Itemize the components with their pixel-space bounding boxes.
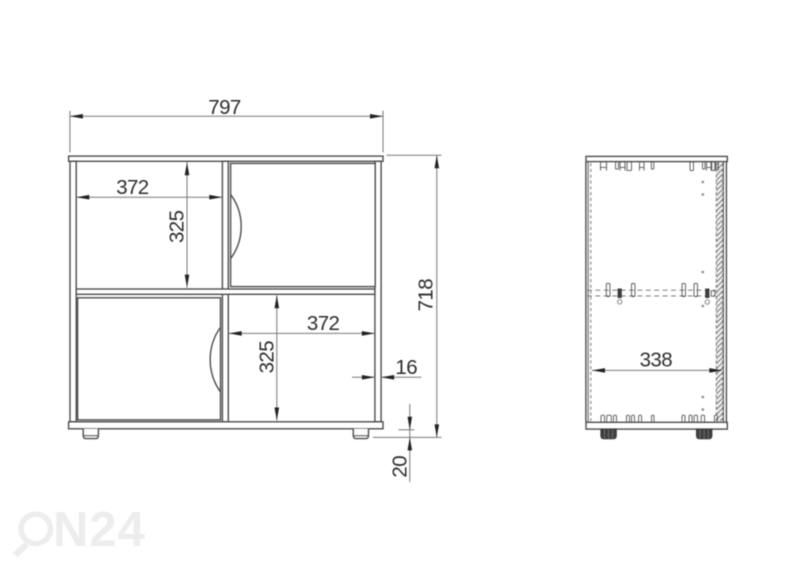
svg-text:338: 338 <box>640 349 673 372</box>
svg-text:20: 20 <box>388 456 411 478</box>
svg-text:16: 16 <box>395 356 417 379</box>
svg-text:372: 372 <box>307 312 340 335</box>
svg-text:325: 325 <box>255 341 278 374</box>
svg-text:797: 797 <box>208 96 241 119</box>
svg-text:325: 325 <box>166 210 189 243</box>
svg-text:372: 372 <box>116 176 149 199</box>
svg-text:718: 718 <box>415 279 438 312</box>
svg-text:N24: N24 <box>53 503 146 557</box>
